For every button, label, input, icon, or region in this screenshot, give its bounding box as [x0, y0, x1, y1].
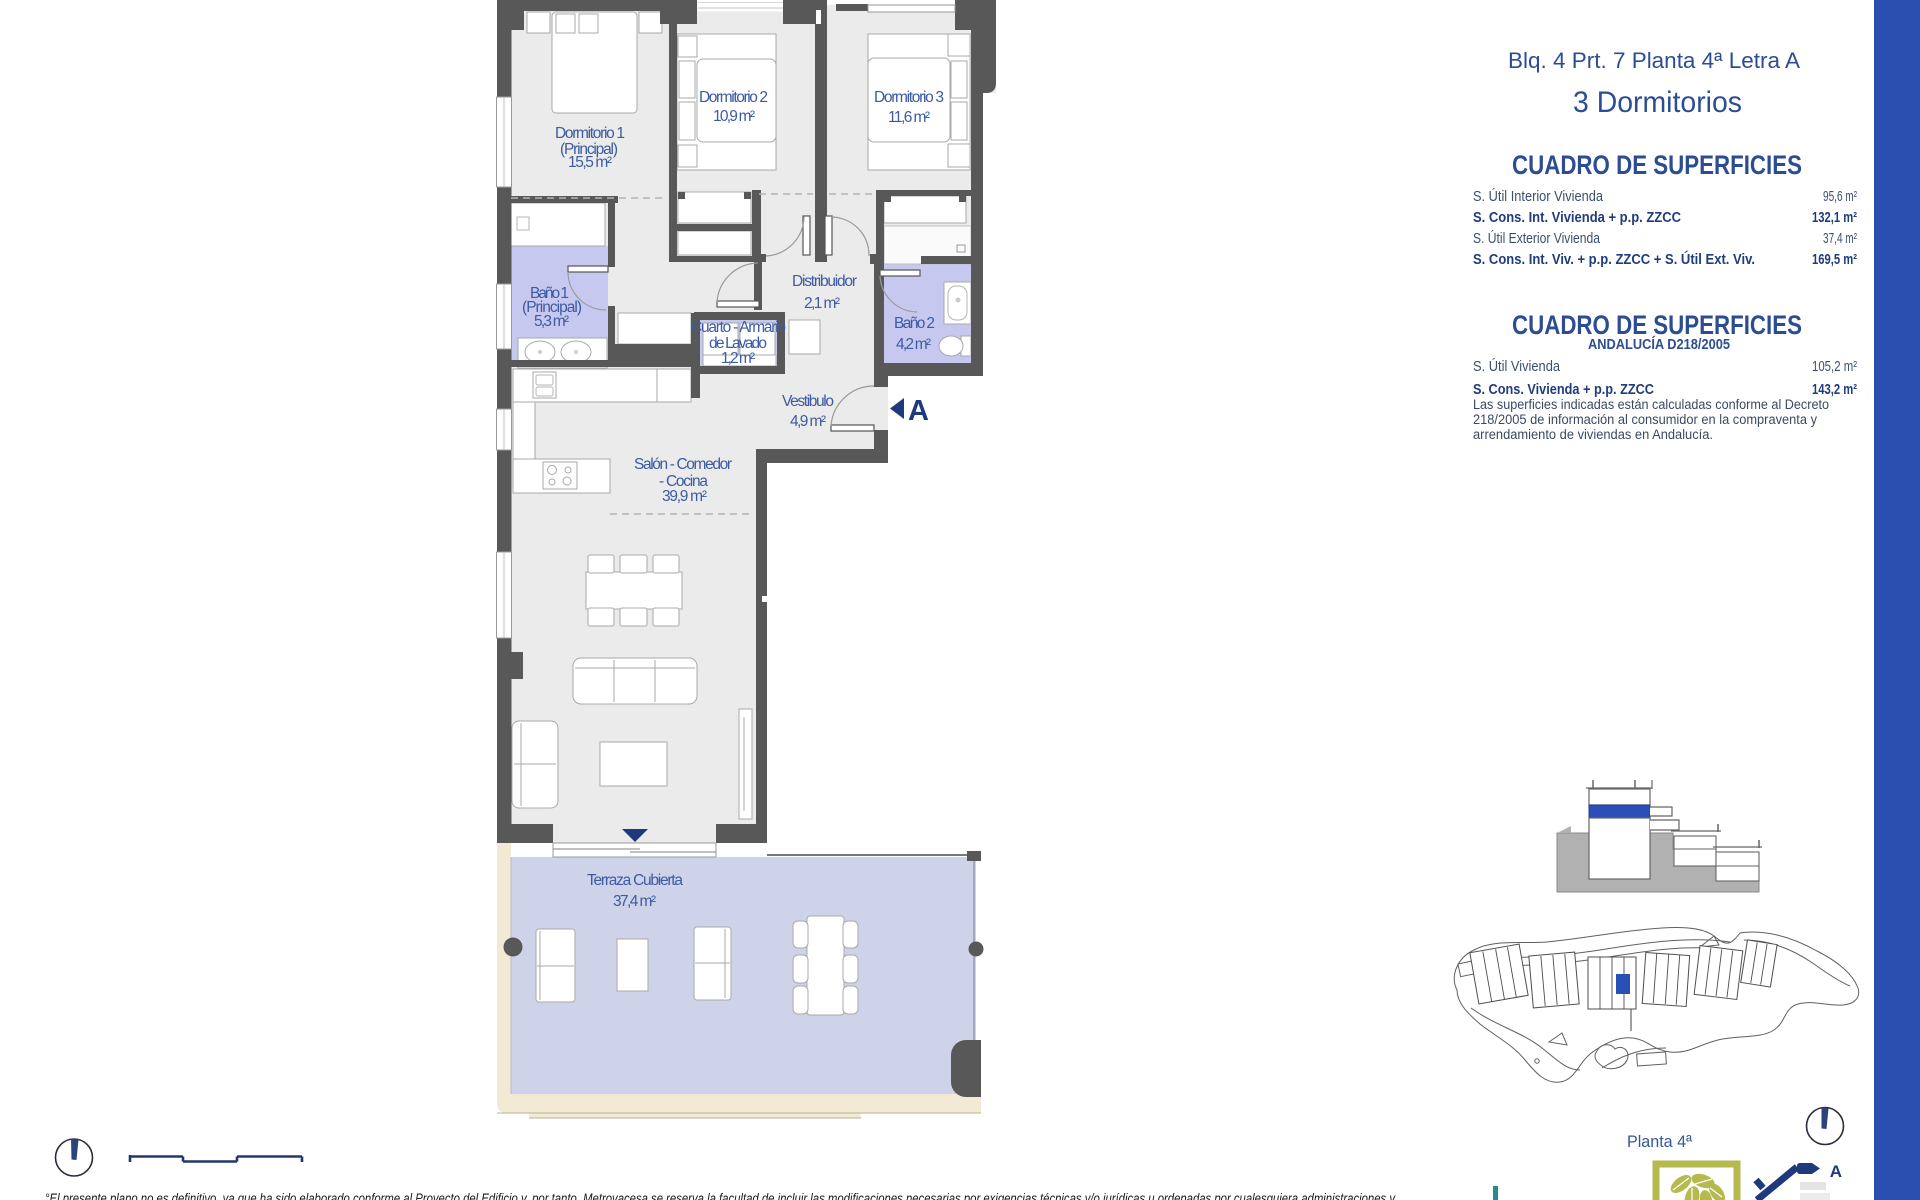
svg-text:4,9 m²: 4,9 m² — [790, 413, 826, 430]
svg-text:°El presente plano no es defin: °El presente plano no es definitivo, ya … — [45, 1191, 1396, 1200]
svg-text:169,5 m²: 169,5 m² — [1812, 252, 1857, 268]
svg-text:CUADRO DE SUPERFICIES: CUADRO DE SUPERFICIES — [1512, 310, 1802, 340]
svg-text:5,3 m²: 5,3 m² — [534, 313, 569, 330]
svg-text:Cuarto - Armario: Cuarto - Armario — [691, 319, 786, 336]
svg-text:Baño 2: Baño 2 — [894, 315, 935, 332]
svg-text:1,2 m²: 1,2 m² — [721, 350, 755, 367]
svg-text:CUADRO DE SUPERFICIES: CUADRO DE SUPERFICIES — [1512, 150, 1802, 180]
svg-text:95,6 m²: 95,6 m² — [1823, 189, 1857, 205]
svg-text:S. Cons. Int. Viv. + p.p. ZZCC: S. Cons. Int. Viv. + p.p. ZZCC + S. Útil… — [1473, 250, 1755, 268]
svg-text:Vestibulo: Vestibulo — [782, 393, 834, 410]
svg-text:11,6 m²: 11,6 m² — [888, 109, 930, 126]
svg-text:S. Cons. Vivienda + p.p. ZZCC: S. Cons. Vivienda + p.p. ZZCC — [1473, 382, 1654, 398]
svg-text:4,2 m²: 4,2 m² — [896, 336, 931, 353]
svg-text:Distribuidor: Distribuidor — [792, 273, 857, 290]
svg-text:15,5 m²: 15,5 m² — [568, 154, 612, 171]
svg-text:S. Cons. Int. Vivienda + p.p.: S. Cons. Int. Vivienda + p.p. ZZCC — [1473, 210, 1681, 226]
svg-text:ANDALUCÍA D218/2005: ANDALUCÍA D218/2005 — [1588, 336, 1730, 353]
svg-text:39,9 m²: 39,9 m² — [662, 488, 707, 505]
svg-text:Dormitorio 3: Dormitorio 3 — [874, 89, 944, 106]
svg-text:218/2005 de información al con: 218/2005 de información al consumidor en… — [1473, 412, 1817, 427]
svg-text:Blq. 4 Prt. 7 Planta 4ª Letra: Blq. 4 Prt. 7 Planta 4ª Letra A — [1508, 48, 1800, 73]
svg-text:10,9 m²: 10,9 m² — [713, 108, 755, 125]
svg-text:Salón - Comedor: Salón - Comedor — [634, 456, 732, 473]
svg-text:S. Útil Interior Vivienda: S. Útil Interior Vivienda — [1473, 188, 1604, 205]
svg-text:Terraza Cubierta: Terraza Cubierta — [587, 872, 683, 889]
svg-text:3 Dormitorios: 3 Dormitorios — [1573, 86, 1742, 119]
svg-text:Planta 4ª: Planta 4ª — [1627, 1132, 1693, 1151]
svg-text:S. Útil Vivienda: S. Útil Vivienda — [1473, 358, 1561, 375]
svg-text:37,4 m²: 37,4 m² — [1823, 231, 1857, 247]
svg-text:arrendamiento de viviendas en: arrendamiento de viviendas en Andalucía. — [1473, 427, 1713, 442]
svg-text:143,2 m²: 143,2 m² — [1812, 382, 1857, 398]
svg-text:105,2 m²: 105,2 m² — [1812, 359, 1857, 375]
svg-text:2,1 m²: 2,1 m² — [804, 295, 840, 312]
svg-text:Dormitorio 1: Dormitorio 1 — [555, 125, 625, 142]
svg-text:A: A — [908, 395, 929, 427]
svg-text:Las superficies indicadas está: Las superficies indicadas están calculad… — [1473, 397, 1829, 412]
svg-text:S. Útil Exterior Vivienda: S. Útil Exterior Vivienda — [1473, 230, 1601, 247]
svg-text:132,1 m²: 132,1 m² — [1812, 210, 1857, 226]
svg-text:37,4 m²: 37,4 m² — [613, 893, 656, 910]
svg-text:A: A — [1830, 1162, 1842, 1181]
svg-text:Dormitorio 2: Dormitorio 2 — [699, 89, 768, 106]
